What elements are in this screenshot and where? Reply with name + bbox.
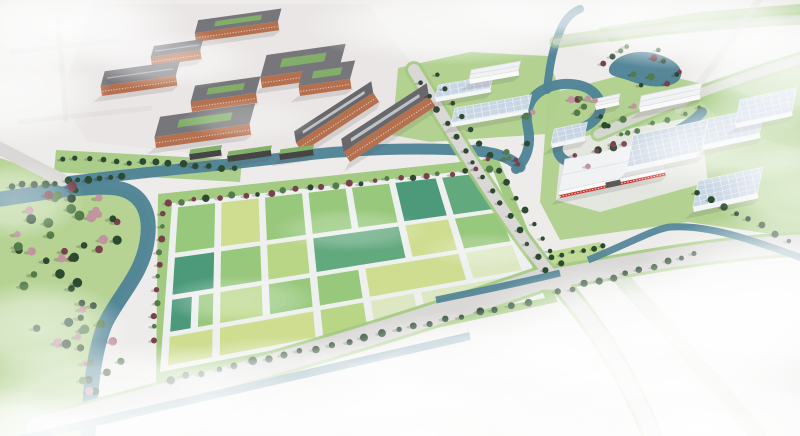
tree bbox=[155, 274, 160, 279]
tree bbox=[517, 227, 524, 234]
tree bbox=[486, 157, 491, 162]
tree bbox=[58, 254, 66, 262]
tree bbox=[164, 160, 171, 167]
tree bbox=[601, 122, 608, 129]
tree bbox=[81, 242, 88, 249]
tree bbox=[14, 242, 23, 251]
tree bbox=[427, 94, 432, 99]
tree bbox=[548, 249, 552, 253]
tree bbox=[31, 271, 38, 278]
tree bbox=[359, 181, 364, 186]
tree bbox=[154, 287, 159, 292]
tree bbox=[435, 171, 440, 176]
tree bbox=[180, 160, 187, 167]
masterplan-rendering bbox=[0, 0, 800, 436]
tree bbox=[462, 168, 468, 174]
tree bbox=[620, 116, 627, 123]
tree bbox=[85, 176, 93, 184]
tree bbox=[600, 243, 605, 248]
tree bbox=[255, 192, 260, 197]
tree bbox=[113, 236, 122, 245]
tree bbox=[139, 158, 146, 165]
tree bbox=[558, 260, 564, 266]
tree bbox=[630, 71, 636, 77]
tree bbox=[454, 134, 460, 140]
tree bbox=[573, 153, 578, 158]
tree bbox=[280, 187, 286, 193]
tree bbox=[581, 103, 587, 109]
tree bbox=[445, 121, 450, 126]
tree bbox=[600, 61, 606, 67]
tree bbox=[191, 197, 196, 202]
tree bbox=[373, 178, 378, 183]
tree bbox=[559, 253, 564, 258]
cloud bbox=[600, 130, 760, 190]
tree bbox=[476, 140, 482, 146]
tree bbox=[178, 199, 185, 206]
tree bbox=[332, 182, 339, 189]
tree bbox=[152, 324, 157, 329]
tree bbox=[581, 248, 586, 253]
tree bbox=[470, 160, 474, 164]
tree bbox=[243, 193, 249, 199]
tree bbox=[507, 156, 511, 160]
tree bbox=[398, 175, 403, 180]
tree bbox=[61, 248, 68, 255]
tree bbox=[43, 257, 50, 264]
tree bbox=[516, 162, 521, 167]
tree bbox=[486, 165, 493, 172]
tree bbox=[513, 158, 518, 163]
tree bbox=[631, 103, 637, 109]
tree bbox=[127, 161, 132, 166]
tree bbox=[87, 156, 92, 161]
tree bbox=[307, 184, 313, 190]
cloud bbox=[420, 232, 540, 268]
tree bbox=[664, 81, 670, 87]
tree bbox=[504, 149, 510, 155]
tree bbox=[574, 109, 581, 116]
crop-plot bbox=[175, 203, 215, 253]
tree bbox=[95, 246, 103, 254]
tree bbox=[318, 184, 324, 190]
tree bbox=[496, 168, 502, 174]
cloud bbox=[160, 275, 320, 325]
tree bbox=[514, 196, 519, 201]
tree bbox=[228, 191, 235, 198]
tree bbox=[410, 175, 416, 181]
tree bbox=[165, 199, 172, 206]
cloud bbox=[80, 30, 260, 90]
tree bbox=[97, 175, 103, 181]
tree bbox=[647, 73, 654, 80]
tree bbox=[442, 86, 447, 91]
tree bbox=[585, 164, 590, 169]
tree bbox=[591, 246, 597, 252]
tree bbox=[156, 249, 162, 255]
tree bbox=[154, 300, 160, 306]
tree bbox=[435, 73, 439, 77]
tree bbox=[524, 141, 530, 147]
tree bbox=[206, 163, 212, 169]
tree bbox=[157, 262, 163, 268]
tree bbox=[151, 313, 157, 319]
tree bbox=[114, 159, 120, 165]
tree bbox=[625, 130, 630, 135]
tree bbox=[60, 157, 65, 162]
tree bbox=[639, 83, 644, 88]
tree bbox=[101, 157, 107, 163]
cloud bbox=[270, 208, 430, 252]
tree bbox=[160, 211, 166, 217]
tree bbox=[503, 179, 510, 186]
tree bbox=[490, 188, 495, 193]
tree bbox=[292, 186, 298, 192]
tree bbox=[459, 114, 464, 119]
tree bbox=[108, 175, 113, 180]
tree bbox=[418, 80, 423, 85]
tree bbox=[70, 253, 79, 262]
tree bbox=[232, 166, 237, 171]
tree bbox=[598, 114, 603, 119]
tree bbox=[532, 222, 536, 226]
tree bbox=[530, 109, 535, 114]
tree bbox=[571, 250, 575, 254]
tree bbox=[202, 195, 209, 202]
tree bbox=[55, 269, 65, 279]
tree bbox=[433, 106, 440, 113]
tree bbox=[423, 173, 429, 179]
tree bbox=[508, 213, 514, 219]
tree bbox=[497, 200, 502, 205]
tree bbox=[99, 235, 108, 244]
tree bbox=[480, 175, 485, 180]
aerial-scene-canvas bbox=[0, 0, 800, 436]
tree bbox=[694, 190, 700, 196]
tree bbox=[72, 155, 77, 160]
tree bbox=[28, 247, 36, 255]
tree bbox=[522, 207, 529, 214]
tree bbox=[585, 96, 591, 102]
tree bbox=[86, 212, 96, 222]
tree bbox=[675, 72, 680, 77]
tree bbox=[501, 157, 506, 162]
tree bbox=[95, 194, 102, 201]
tree bbox=[473, 166, 478, 171]
tree bbox=[468, 127, 473, 132]
tree bbox=[549, 254, 555, 260]
tree bbox=[346, 180, 353, 187]
tree bbox=[152, 158, 159, 165]
crop-plot bbox=[221, 198, 260, 246]
tree bbox=[594, 149, 599, 154]
tree bbox=[568, 96, 575, 103]
tree bbox=[109, 215, 116, 222]
tree bbox=[450, 172, 455, 177]
tree bbox=[463, 148, 468, 153]
cloud bbox=[180, 98, 320, 142]
tree bbox=[593, 98, 598, 103]
tree bbox=[118, 173, 125, 180]
tree bbox=[192, 163, 198, 169]
tree bbox=[450, 101, 455, 106]
tree bbox=[218, 165, 225, 172]
tree bbox=[541, 236, 545, 240]
tree bbox=[268, 190, 275, 197]
tree bbox=[384, 176, 389, 181]
tree bbox=[158, 236, 165, 243]
tree bbox=[160, 224, 165, 229]
tree bbox=[217, 195, 223, 201]
